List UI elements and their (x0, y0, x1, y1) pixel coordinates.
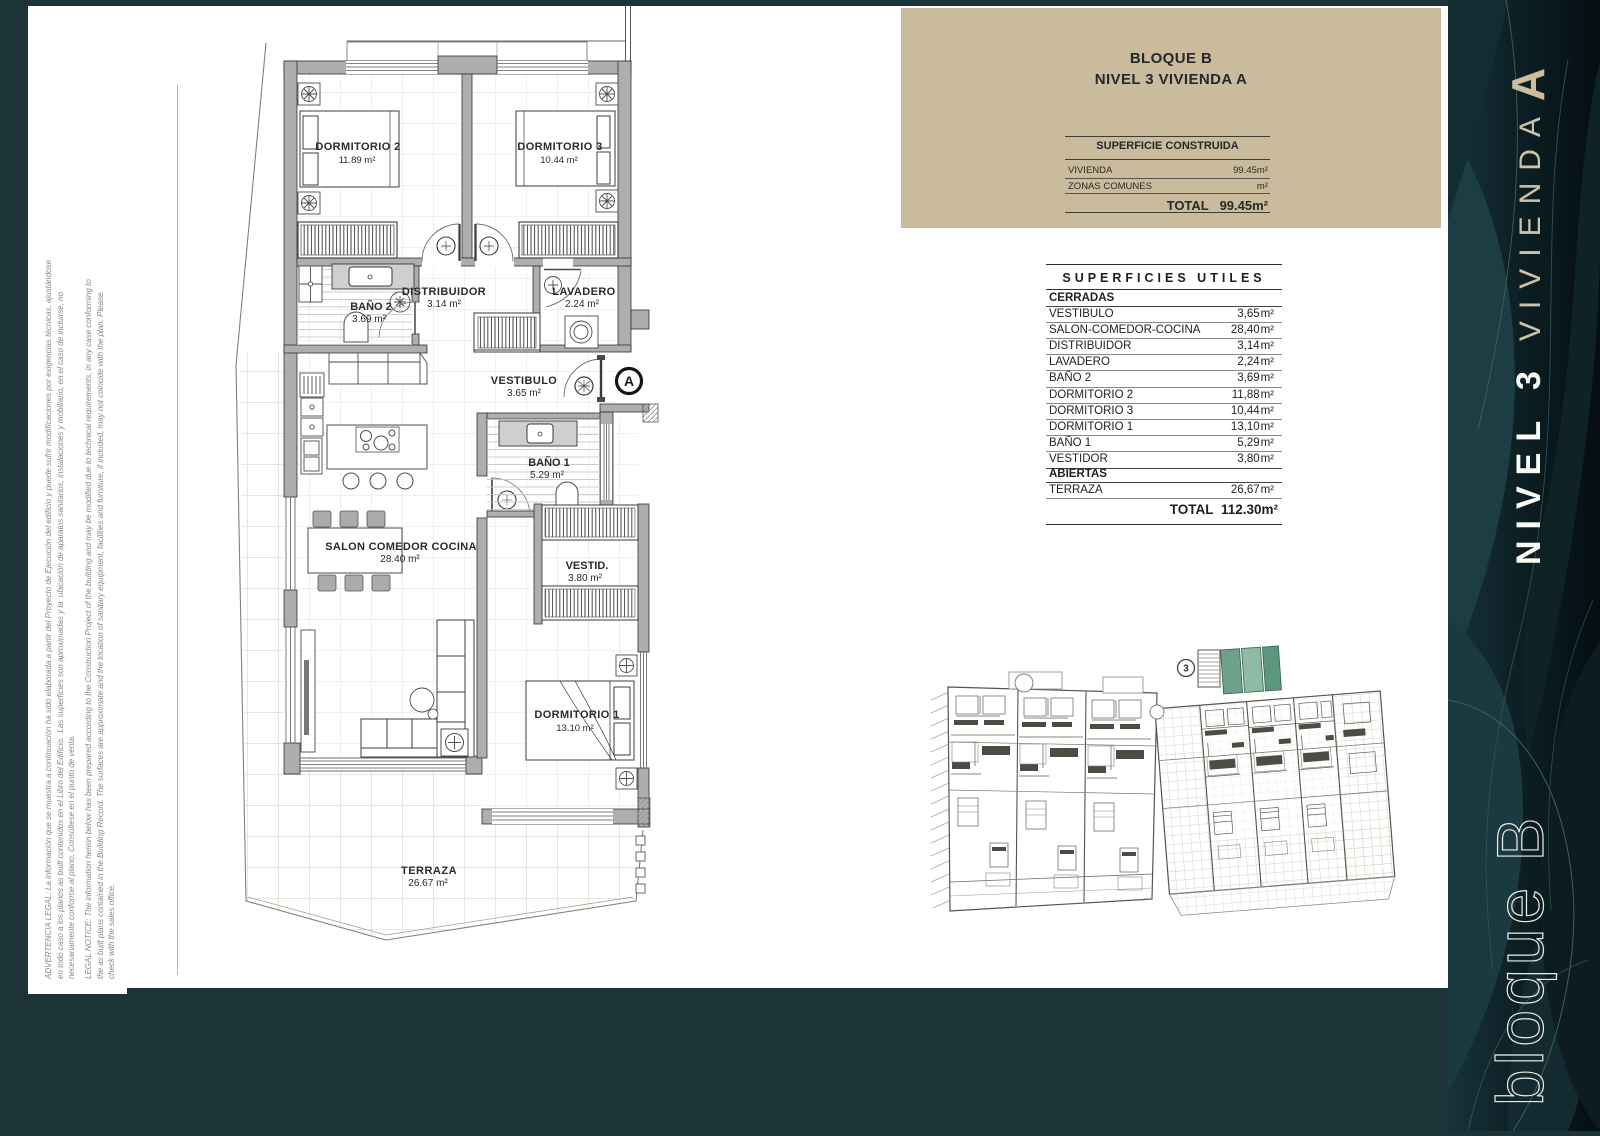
svg-text:SALON COMEDOR COCINA: SALON COMEDOR COCINA (325, 541, 476, 553)
svg-text:2.24 m²: 2.24 m² (565, 299, 600, 310)
svg-text:VESTIBULO: VESTIBULO (491, 375, 558, 387)
svg-text:3.14 m²: 3.14 m² (427, 299, 462, 310)
svg-text:DORMITORIO 1: DORMITORIO 1 (534, 709, 619, 721)
svg-text:5.29 m²: 5.29 m² (530, 470, 565, 481)
svg-text:DORMITORIO 2: DORMITORIO 2 (315, 141, 400, 153)
svg-text:3.65 m²: 3.65 m² (507, 388, 542, 399)
svg-text:DISTRIBUIDOR: DISTRIBUIDOR (402, 286, 486, 298)
svg-text:A: A (624, 373, 634, 389)
svg-text:DORMITORIO 3: DORMITORIO 3 (517, 141, 602, 153)
svg-text:28.40 m²: 28.40 m² (380, 554, 420, 565)
svg-text:BAÑO 1: BAÑO 1 (528, 456, 570, 469)
svg-text:3: 3 (1183, 664, 1189, 675)
svg-text:TERRAZA: TERRAZA (401, 865, 457, 877)
svg-text:3.80 m²: 3.80 m² (568, 573, 603, 584)
svg-text:10.44 m²: 10.44 m² (540, 155, 578, 166)
svg-text:11.89 m²: 11.89 m² (339, 155, 376, 166)
svg-text:26.67 m²: 26.67 m² (408, 878, 448, 889)
svg-text:BAÑO 2: BAÑO 2 (350, 300, 392, 313)
svg-text:3.69 m²: 3.69 m² (352, 314, 387, 325)
svg-text:LAVADERO: LAVADERO (552, 286, 615, 298)
svg-text:VESTID.: VESTID. (566, 560, 609, 572)
svg-text:13.10 m²: 13.10 m² (556, 723, 594, 734)
